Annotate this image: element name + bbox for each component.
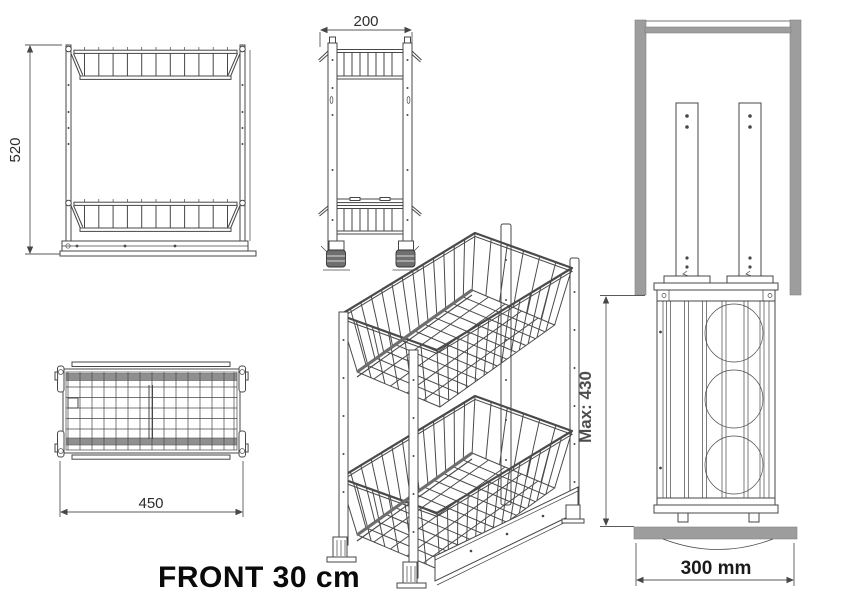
rear-center-post (501, 224, 511, 505)
rail-tab (380, 198, 390, 201)
front-foot (397, 562, 426, 588)
mounting-rail (676, 103, 698, 283)
basket-wires (85, 53, 228, 76)
roller-wheel-icon (396, 250, 415, 267)
arrow-right-icon (236, 509, 244, 515)
extension-lines (25, 45, 62, 254)
arrow-left-icon (320, 27, 328, 33)
front-view: 520 (7, 45, 256, 256)
cabinet-section-view: Max: 430 300 mm (576, 20, 801, 586)
cabinet-bottom-shelf (634, 527, 797, 539)
dim-label-450: 450 (138, 495, 163, 512)
dim-label-200: 200 (353, 13, 378, 30)
front-caption: FRONT 30 cm (158, 561, 360, 594)
right-wheel-assembly (393, 241, 420, 270)
rail-bracket (664, 276, 710, 283)
dimension-max-height: Max: 430 (576, 296, 645, 527)
basket-top-rail (337, 206, 403, 209)
basket-slats (344, 53, 392, 77)
front-left-post (339, 312, 348, 545)
wheel-bracket (329, 241, 344, 250)
arrow-up-icon (603, 296, 609, 304)
arrow-down-icon (27, 247, 33, 255)
dim-label-520: 520 (7, 137, 24, 162)
wheel-bracket (399, 241, 414, 250)
bracket-box (68, 398, 78, 408)
basket-top-rail (337, 50, 403, 53)
post-holes (68, 84, 244, 145)
rail-bracket (727, 276, 773, 283)
base-hole (174, 245, 177, 248)
basket-bottom-rail (337, 76, 403, 79)
basket-wireframe (340, 233, 572, 350)
mounting-rails (664, 103, 773, 286)
basket-top-rail (74, 202, 237, 205)
arrow-left-icon (636, 577, 644, 583)
dimension-front-height: 520 (7, 45, 62, 254)
arrow-right-icon (787, 577, 795, 583)
basket-wires (85, 205, 228, 228)
mounting-rail (739, 103, 761, 283)
technical-drawing-page: 520 (0, 0, 863, 600)
bottom-crossbar (657, 498, 775, 505)
dimension-top-width: 450 (60, 461, 243, 517)
basket-slats (344, 209, 392, 232)
left-post-side (328, 43, 337, 255)
top-crossbar (654, 283, 778, 290)
left-foot (327, 537, 356, 562)
rail-tab (350, 198, 360, 201)
lower-basket-front (71, 199, 240, 231)
base-front (60, 241, 256, 256)
screw-icon (66, 200, 72, 206)
rear-foot-plate (562, 519, 584, 523)
foot-tab (678, 513, 688, 522)
lower-basket-side (337, 198, 403, 235)
basket-bottom-rail (80, 76, 231, 79)
door-swing-arc (663, 539, 773, 550)
top-view: 450 (55, 362, 248, 517)
screw-icon (66, 46, 72, 52)
front-rail-top (72, 362, 230, 367)
arrow-down-icon (603, 519, 609, 527)
arrow-up-icon (27, 45, 33, 53)
side-view: 200 (319, 13, 422, 270)
screw-icon (240, 200, 246, 206)
arrow-left-icon (60, 509, 68, 515)
base-flange (60, 251, 256, 256)
basket-top-rail (74, 50, 237, 53)
cabinet-top-rail (645, 27, 791, 33)
arrow-right-icon (405, 27, 413, 33)
post-holes (330, 59, 410, 244)
roller-wheel-icon (327, 250, 346, 267)
upper-basket-front (71, 47, 240, 79)
dim-label-300mm: 300 mm (681, 558, 752, 579)
pullout-basket-plan (654, 283, 778, 522)
right-post-side (403, 43, 412, 255)
front-rail-bottom (72, 455, 230, 459)
base-hole (76, 245, 79, 248)
left-wheel-assembly (321, 241, 350, 270)
top-crossbar-body (657, 290, 775, 301)
isometric-view (327, 224, 584, 588)
basket-wireframe (340, 396, 572, 513)
foot-tab (749, 513, 759, 522)
wheel-hook (321, 246, 327, 252)
dim-line (600, 296, 645, 527)
front-mid-post (409, 350, 418, 578)
basket-body (657, 301, 775, 498)
connector-rail (337, 199, 403, 203)
rear-foot (566, 505, 580, 520)
basket-wireframe (357, 290, 554, 407)
screw-icon (240, 46, 246, 52)
basket-bottom-rail (80, 228, 231, 231)
dim-label-max-430: Max: 430 (576, 371, 595, 443)
pullout-basket-drawing: 520 (0, 0, 863, 600)
bottom-crossbar-body (654, 505, 778, 513)
front-posts (327, 312, 426, 588)
cabinet-right-wall (790, 20, 801, 295)
basket-bottom-rail (337, 231, 403, 234)
cabinet-left-wall (635, 20, 646, 295)
upper-basket-side (337, 50, 403, 80)
base-hole (124, 245, 127, 248)
